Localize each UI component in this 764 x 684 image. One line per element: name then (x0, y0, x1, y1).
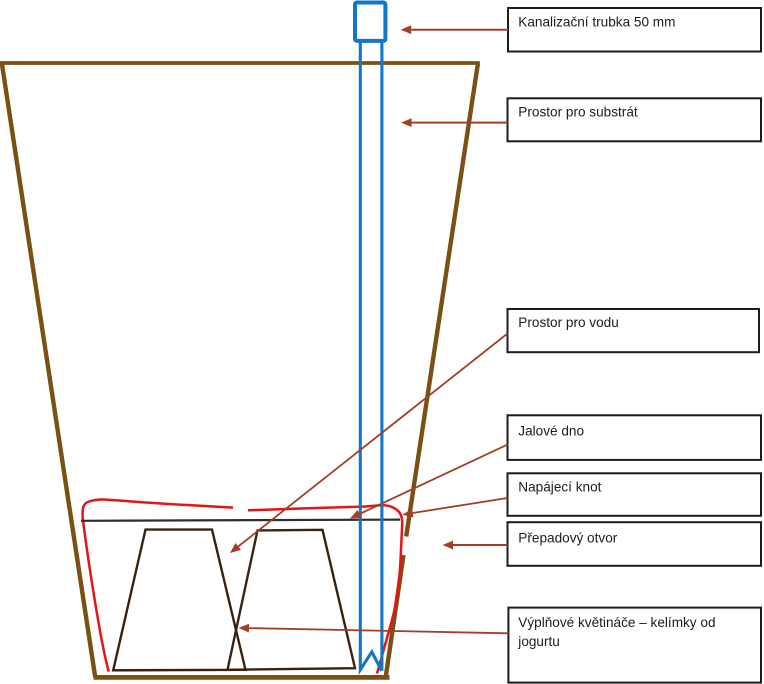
svg-text:Přepadový otvor: Přepadový otvor (518, 530, 617, 545)
svg-text:Napájecí knot: Napájecí knot (518, 480, 601, 495)
svg-text:Jalové dno: Jalové dno (518, 424, 584, 439)
svg-text:jogurtu: jogurtu (517, 634, 560, 649)
svg-text:Kanalizační trubka 50 mm: Kanalizační trubka 50 mm (518, 15, 675, 30)
svg-text:Výplňové květináče – kelímky o: Výplňové květináče – kelímky od (518, 615, 715, 630)
svg-text:Prostor pro substrát: Prostor pro substrát (518, 104, 638, 119)
svg-text:Prostor pro vodu: Prostor pro vodu (518, 315, 619, 330)
